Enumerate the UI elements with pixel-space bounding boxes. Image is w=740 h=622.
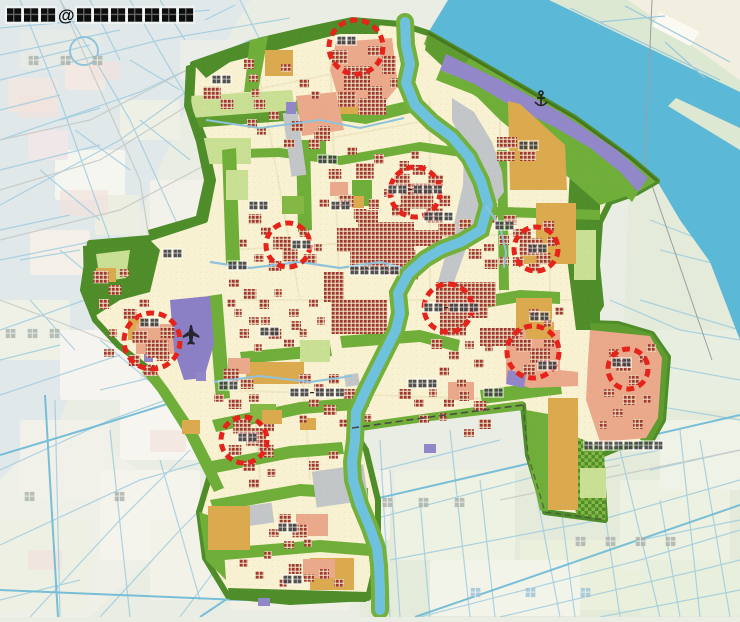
svg-text:@: @ <box>58 6 75 25</box>
